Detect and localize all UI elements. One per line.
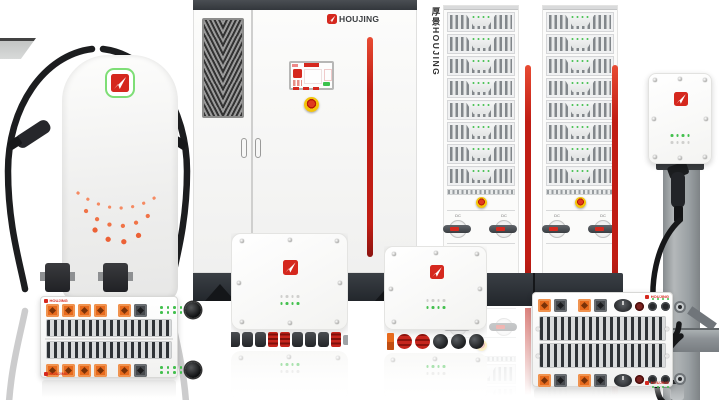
led-dot xyxy=(478,60,480,62)
switch-label: DC xyxy=(600,213,606,218)
led-dot xyxy=(286,302,289,305)
oc-connector xyxy=(78,364,91,377)
module-status-leds xyxy=(473,60,490,62)
screw xyxy=(239,356,243,360)
module-reflection xyxy=(231,351,348,400)
oc-connector xyxy=(78,304,91,317)
rc-big-connector xyxy=(674,301,686,313)
switch-plate xyxy=(495,318,513,336)
module-reflection xyxy=(534,388,671,399)
rotary-switch-reflection xyxy=(489,312,519,338)
led-dot xyxy=(687,141,690,144)
power-module-slot xyxy=(447,34,515,54)
module-handle-notch xyxy=(464,80,498,92)
screw xyxy=(287,355,291,359)
led-dot xyxy=(180,311,183,314)
led-dot xyxy=(478,148,480,150)
dark-big-connector xyxy=(433,334,448,349)
wall-inverter-module xyxy=(231,233,348,400)
led-dot xyxy=(432,365,435,368)
oc-connector xyxy=(118,364,131,377)
power-module-slot xyxy=(447,122,515,142)
display-button-grid xyxy=(293,80,302,86)
led-dot xyxy=(587,104,589,106)
led-dot xyxy=(443,372,446,375)
power-module-slot xyxy=(546,34,614,54)
module-handle-notch xyxy=(464,102,498,114)
power-module-slot xyxy=(447,56,515,76)
module-handle-notch xyxy=(464,168,498,180)
led-dot xyxy=(577,82,579,84)
module-status-leds xyxy=(473,126,490,128)
screw xyxy=(653,155,657,159)
status-leds xyxy=(426,365,445,368)
led-dot xyxy=(682,134,685,137)
screw xyxy=(478,287,482,291)
red-connector xyxy=(268,332,278,347)
switch-handle xyxy=(489,323,517,331)
dc-connectors xyxy=(538,299,607,312)
module-reflection xyxy=(42,380,176,398)
vertical-brand-text: 厚景HOUJING xyxy=(430,7,442,117)
round-connector-knob xyxy=(185,362,201,378)
led-dot xyxy=(652,298,654,300)
tower-cap xyxy=(543,6,617,10)
power-module-slot xyxy=(546,100,614,120)
led-dot xyxy=(572,148,574,150)
led-dot xyxy=(587,16,589,18)
led-dot xyxy=(662,298,664,300)
power-module-slot xyxy=(447,144,515,164)
module-status-leds xyxy=(473,104,490,106)
screw xyxy=(288,321,292,325)
led-dot xyxy=(483,60,485,62)
led-dot xyxy=(483,104,485,106)
led-dot xyxy=(667,298,669,300)
gun-holster-left xyxy=(45,263,70,292)
module-handle-notch xyxy=(563,14,597,26)
led-dot xyxy=(437,299,440,302)
vent-grille xyxy=(539,343,666,368)
screw xyxy=(392,320,396,324)
led-dot xyxy=(173,311,176,314)
red-big-connector xyxy=(397,334,412,349)
led-dot xyxy=(473,16,475,18)
screw xyxy=(476,358,480,362)
status-leds xyxy=(280,302,299,305)
io-cluster xyxy=(635,298,686,313)
oc-connector xyxy=(94,304,107,317)
emergency-stop-button xyxy=(304,97,319,112)
oc-connector xyxy=(46,304,59,317)
led-dot xyxy=(478,170,480,172)
screw xyxy=(678,77,682,81)
led-dot xyxy=(426,372,429,375)
power-module-slot xyxy=(447,12,515,32)
screw xyxy=(392,252,396,256)
switch-handle xyxy=(489,225,517,233)
cabinet-top-strip xyxy=(193,0,417,10)
led-dot xyxy=(478,126,480,128)
led-dot xyxy=(432,299,435,302)
led-dot xyxy=(473,126,475,128)
mini-brand-logo: HOUJING xyxy=(44,372,68,376)
screw xyxy=(433,357,437,361)
switch-label: DC xyxy=(501,213,507,218)
led-dot xyxy=(432,306,435,309)
oc-connector xyxy=(578,374,591,387)
led-dot xyxy=(160,371,163,374)
led-dot xyxy=(426,306,429,309)
dc2-connector xyxy=(134,304,147,317)
module-status-leds xyxy=(572,38,589,40)
status-leds xyxy=(280,295,299,298)
led-dot xyxy=(577,104,579,106)
red-big-connector xyxy=(415,334,430,349)
led-dot xyxy=(676,141,679,144)
module-handle-notch xyxy=(563,58,597,70)
led-dot xyxy=(483,82,485,84)
led-dot xyxy=(173,366,176,369)
screw xyxy=(475,320,479,324)
led-dot xyxy=(582,170,584,172)
led-dot xyxy=(167,371,170,374)
module-handle-notch xyxy=(563,80,597,92)
led-dot xyxy=(572,170,574,172)
led-dot xyxy=(478,104,480,106)
led-dot xyxy=(473,82,475,84)
led-dot xyxy=(297,363,300,366)
led-dot xyxy=(587,82,589,84)
led-dot xyxy=(437,372,440,375)
door-handle-left xyxy=(241,138,247,158)
led-dot xyxy=(488,170,490,172)
connector-row xyxy=(533,293,672,314)
power-module-slot xyxy=(546,166,614,186)
module-handle-notch xyxy=(563,146,597,158)
tower-module-slots xyxy=(543,12,617,186)
vent-grille xyxy=(46,319,172,337)
led-dot xyxy=(443,306,446,309)
dark-connector xyxy=(318,332,329,347)
vent-grille xyxy=(539,316,666,341)
screw xyxy=(391,358,395,362)
led-dot xyxy=(280,302,283,305)
led-dot xyxy=(437,365,440,368)
screw xyxy=(475,252,479,256)
led-dot xyxy=(577,16,579,18)
led-dot xyxy=(432,372,435,375)
led-dot xyxy=(577,170,579,172)
led-dot xyxy=(167,366,170,369)
rc-dark-connector xyxy=(661,302,670,311)
mini-brand-logo: HOUJING xyxy=(645,381,669,385)
small-connector xyxy=(343,335,348,345)
led-dot xyxy=(443,299,446,302)
led-dot xyxy=(488,16,490,18)
led-dot xyxy=(286,295,289,298)
display-header-bar xyxy=(304,63,319,67)
screw xyxy=(336,356,340,360)
led-dot xyxy=(478,16,480,18)
led-dot xyxy=(577,38,579,40)
estop-strip xyxy=(444,195,518,210)
module-status-leds xyxy=(473,82,490,84)
led-dot xyxy=(577,60,579,62)
status-leds xyxy=(671,141,690,144)
screw xyxy=(338,281,342,285)
led-dot xyxy=(443,365,446,368)
status-leds xyxy=(280,363,299,366)
gap-connector xyxy=(570,299,575,312)
power-module-slot xyxy=(447,78,515,98)
rack-power-module-pair: HOUJING HOUJING xyxy=(40,296,178,378)
led-dot xyxy=(426,299,429,302)
led-dot xyxy=(483,16,485,18)
connector-row xyxy=(41,297,177,319)
module-status-leds xyxy=(572,126,589,128)
brand-logo xyxy=(105,68,135,98)
led-dot xyxy=(473,104,475,106)
led-dot xyxy=(483,170,485,172)
module-face xyxy=(384,246,487,330)
switch-handle xyxy=(542,225,570,233)
gun-holster-right xyxy=(103,263,128,292)
screw xyxy=(434,251,438,255)
tower-cap xyxy=(444,6,518,10)
rc-dark-connector xyxy=(648,302,657,311)
tower-red-stripe xyxy=(612,65,618,293)
led-dot xyxy=(291,370,294,373)
led-dot xyxy=(291,302,294,305)
led-dot xyxy=(572,126,574,128)
module-status-leds xyxy=(572,104,589,106)
status-leds xyxy=(652,298,669,300)
screw xyxy=(653,78,657,82)
led-dot xyxy=(676,134,679,137)
dc2-connector xyxy=(554,299,567,312)
led-dot xyxy=(572,16,574,18)
module-handle-notch xyxy=(464,14,498,26)
red-connector xyxy=(280,332,290,347)
led-dot xyxy=(572,60,574,62)
module-handle-notch xyxy=(563,102,597,114)
tab2-connector xyxy=(387,333,394,350)
screw xyxy=(389,287,393,291)
module-status-leds xyxy=(572,82,589,84)
screw xyxy=(704,117,708,121)
module-handle-notch xyxy=(464,58,498,70)
switch-panel: DC DC xyxy=(546,210,614,244)
led-dot xyxy=(180,371,183,374)
led-indicator-pairs xyxy=(160,306,182,314)
module-handle-notch xyxy=(464,124,498,136)
red-connector xyxy=(331,332,341,347)
cabinet-red-stripe xyxy=(367,37,373,257)
led-dot xyxy=(478,82,480,84)
dark-connector xyxy=(292,332,303,347)
power-module-slot xyxy=(546,122,614,142)
display-footer-marks xyxy=(293,87,319,90)
oc-connector xyxy=(94,364,107,377)
rotary-knob xyxy=(614,299,632,312)
led-dot xyxy=(483,148,485,150)
hmi-display xyxy=(289,61,334,90)
tower-red-stripe xyxy=(525,65,531,293)
product-lineup-image: HOUJING 厚景HOUJING xyxy=(0,0,719,400)
screw xyxy=(240,239,244,243)
led-dot xyxy=(160,366,163,369)
status-leds xyxy=(671,134,690,137)
status-leds xyxy=(426,306,445,309)
door-seam xyxy=(251,10,253,253)
rc-big-connector xyxy=(674,373,686,385)
brand-wordmark-text: HOUJING xyxy=(339,14,379,24)
led-dot xyxy=(582,148,584,150)
led-dot xyxy=(582,104,584,106)
led-dot xyxy=(488,60,490,62)
connector-row xyxy=(41,359,177,381)
power-module-slot xyxy=(546,78,614,98)
power-module-slot xyxy=(546,144,614,164)
oc-connector xyxy=(118,304,131,317)
led-dot xyxy=(286,370,289,373)
led-dot xyxy=(582,16,584,18)
emergency-stop-button xyxy=(575,197,586,208)
screw xyxy=(703,78,707,82)
led-dot xyxy=(577,126,579,128)
wall-mounted-box xyxy=(648,73,712,164)
emergency-stop-button xyxy=(476,197,487,208)
led-dot xyxy=(291,363,294,366)
switch-label: DC xyxy=(455,213,461,218)
dc-connectors xyxy=(46,304,147,317)
ventilation-grille xyxy=(202,18,244,118)
display-side-panel xyxy=(324,69,332,81)
led-dot xyxy=(582,82,584,84)
led-dot xyxy=(280,370,283,373)
led-dot xyxy=(587,170,589,172)
module-face xyxy=(231,233,348,330)
oc-connector xyxy=(538,299,551,312)
gap-connector xyxy=(570,374,575,387)
oc-connector xyxy=(578,299,591,312)
display-green-button xyxy=(323,82,330,86)
power-module-slot xyxy=(546,56,614,76)
brand-logo-icon xyxy=(674,92,688,106)
rotary-knob xyxy=(614,374,632,387)
led-dot xyxy=(671,141,674,144)
module-status-leds xyxy=(473,38,490,40)
dc2-connector xyxy=(594,374,607,387)
gap-connector xyxy=(110,304,115,317)
dark-connector xyxy=(231,332,240,347)
led-dot xyxy=(582,60,584,62)
led-dot xyxy=(160,311,163,314)
led-dot xyxy=(577,148,579,150)
screw xyxy=(237,281,241,285)
led-dot xyxy=(473,38,475,40)
led-dot xyxy=(572,104,574,106)
led-dot xyxy=(180,306,183,309)
led-dot xyxy=(582,126,584,128)
led-dot xyxy=(167,311,170,314)
display-chart-area xyxy=(304,69,322,84)
indicator-dot-arcs xyxy=(66,185,174,265)
led-dot xyxy=(286,363,289,366)
dc2-connector xyxy=(134,364,147,377)
led-dot xyxy=(488,38,490,40)
led-dot xyxy=(180,366,183,369)
led-dot xyxy=(483,38,485,40)
led-dot xyxy=(478,38,480,40)
led-dot xyxy=(280,363,283,366)
tower-module-slots xyxy=(444,12,518,186)
screw xyxy=(240,320,244,324)
led-dot xyxy=(473,148,475,150)
status-leds xyxy=(426,299,445,302)
led-dot xyxy=(682,141,685,144)
led-dot xyxy=(488,126,490,128)
power-module-slot xyxy=(546,12,614,32)
dark-big-connector xyxy=(469,334,484,349)
module-status-leds xyxy=(572,16,589,18)
round-connectors xyxy=(635,301,686,313)
estop-strip xyxy=(543,195,617,210)
screw xyxy=(703,155,707,159)
stripe-reflection xyxy=(525,308,531,400)
round-connector-knob xyxy=(185,302,201,318)
dc2-connector xyxy=(594,299,607,312)
bottom-connector-row xyxy=(235,331,344,348)
led-dot xyxy=(160,306,163,309)
led-dot xyxy=(483,126,485,128)
oc-connector xyxy=(538,374,551,387)
led-dot xyxy=(280,295,283,298)
screw xyxy=(335,320,339,324)
rotary-disconnect-switch: DC xyxy=(489,214,519,240)
display-mini-label xyxy=(292,64,298,67)
screw xyxy=(652,117,656,121)
rotary-disconnect-switch: DC xyxy=(542,214,572,240)
brand-logo-icon xyxy=(283,260,298,275)
module-status-leds xyxy=(572,60,589,62)
led-dot xyxy=(587,60,589,62)
dark-connector xyxy=(255,332,266,347)
screw xyxy=(288,238,292,242)
module-handle-notch xyxy=(563,124,597,136)
unit-divider xyxy=(45,338,173,340)
module-status-leds xyxy=(473,170,490,172)
wall-inverter-module xyxy=(384,246,487,400)
led-dot xyxy=(582,38,584,40)
led-dot xyxy=(173,306,176,309)
module-status-leds xyxy=(572,148,589,150)
rack-power-module: HOUJING HOUJING xyxy=(532,292,673,387)
led-dot xyxy=(587,148,589,150)
dark-big-connector xyxy=(451,334,466,349)
module-reflection xyxy=(384,353,487,400)
display-logo-tile xyxy=(293,69,302,78)
brand-logo-icon xyxy=(430,265,444,279)
led-dot xyxy=(687,134,690,137)
switch-label: DC xyxy=(554,213,560,218)
dc-connectors xyxy=(538,374,607,387)
module-status-leds xyxy=(572,170,589,172)
brand-logo-icon xyxy=(111,74,129,92)
brand-wordmark: HOUJING xyxy=(327,14,379,24)
led-dot xyxy=(167,306,170,309)
